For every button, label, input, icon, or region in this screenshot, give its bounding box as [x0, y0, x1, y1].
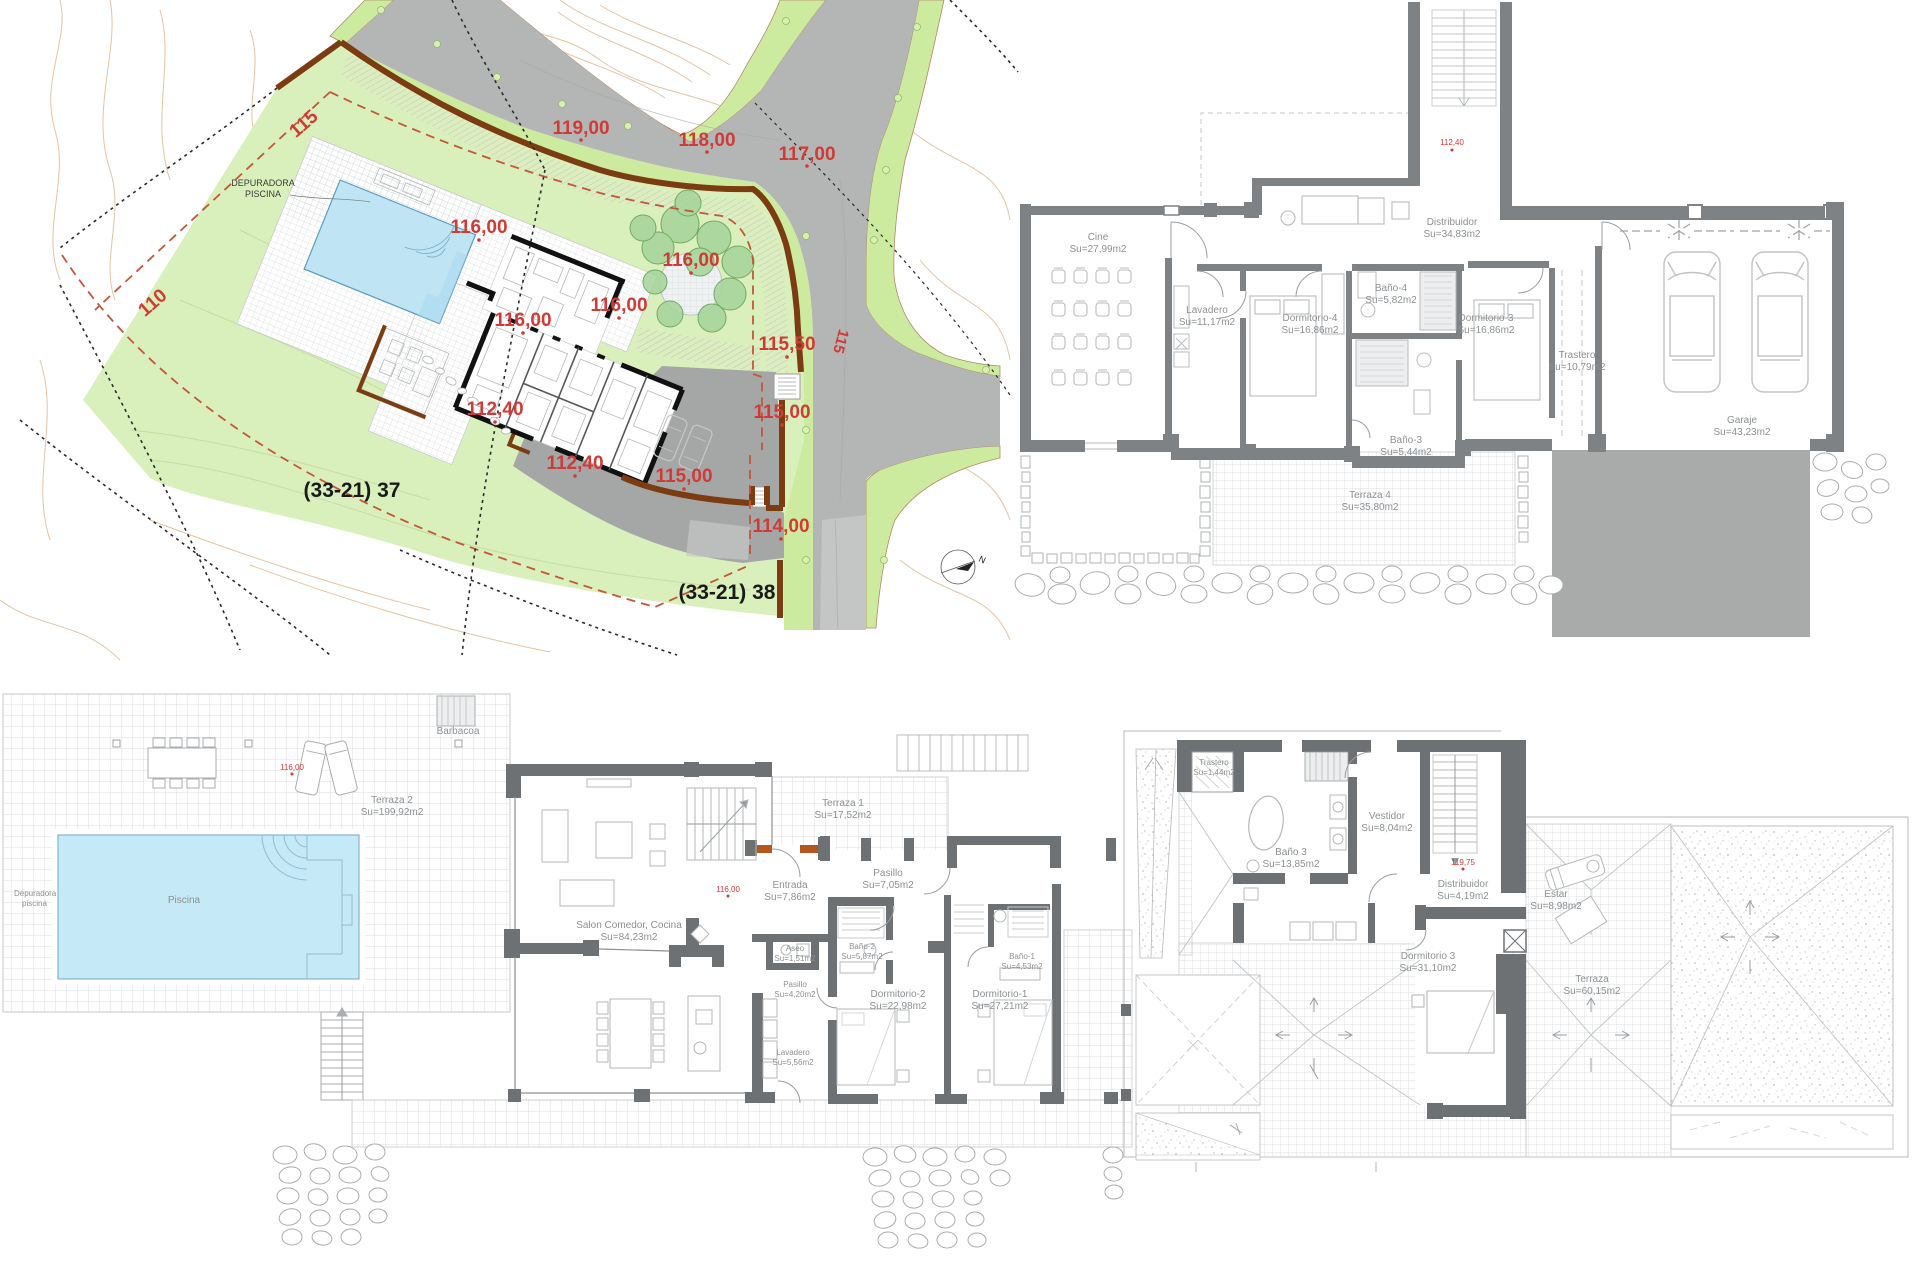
- svg-text:Terraza 4: Terraza 4: [1349, 490, 1391, 501]
- svg-text:Dormitorio-2: Dormitorio-2: [870, 989, 925, 1000]
- svg-text:Su=1,44m2: Su=1,44m2: [1193, 768, 1235, 777]
- svg-text:piscina: piscina: [22, 899, 47, 908]
- svg-text:Piscina: Piscina: [168, 895, 201, 906]
- svg-text:Baño 3: Baño 3: [1275, 847, 1307, 858]
- svg-text:Su=4,53m2: Su=4,53m2: [1001, 962, 1043, 971]
- svg-text:Su=7,05m2: Su=7,05m2: [862, 880, 914, 891]
- svg-text:Lavadero: Lavadero: [1186, 305, 1228, 316]
- svg-text:116,00: 116,00: [450, 217, 507, 238]
- svg-text:Depuradora: Depuradora: [14, 889, 57, 898]
- svg-text:Su=60,15m2: Su=60,15m2: [1564, 986, 1621, 997]
- svg-text:Su=10,79m2: Su=10,79m2: [1549, 362, 1606, 373]
- svg-text:115,00: 115,00: [655, 466, 712, 487]
- svg-text:Su=13,85m2: Su=13,85m2: [1263, 859, 1320, 870]
- svg-text:Distribuidor: Distribuidor: [1427, 217, 1478, 228]
- svg-text:116,00: 116,00: [662, 250, 719, 271]
- svg-text:Dormitorio-1: Dormitorio-1: [972, 989, 1027, 1000]
- svg-text:Aseo: Aseo: [786, 944, 805, 953]
- svg-text:Su=22,98m2: Su=22,98m2: [870, 1001, 927, 1012]
- svg-text:(33-21) 38: (33-21) 38: [679, 581, 776, 604]
- svg-text:Trastero: Trastero: [1199, 758, 1229, 767]
- svg-text:Su=8,04m2: Su=8,04m2: [1361, 823, 1413, 834]
- svg-text:115,00: 115,00: [753, 402, 810, 423]
- svg-text:Barbacoa: Barbacoa: [437, 726, 480, 737]
- svg-text:Su=35,80m2: Su=35,80m2: [1342, 502, 1399, 513]
- svg-text:116,00: 116,00: [280, 763, 304, 772]
- svg-text:Su=8,98m2: Su=8,98m2: [1530, 901, 1582, 912]
- svg-text:(33-21) 37: (33-21) 37: [304, 479, 401, 502]
- svg-text:114,00: 114,00: [752, 516, 809, 537]
- svg-text:Pasillo: Pasillo: [783, 980, 807, 989]
- svg-text:Baño-2: Baño-2: [849, 942, 875, 951]
- svg-text:Su=4,19m2: Su=4,19m2: [1437, 891, 1489, 902]
- svg-text:Su=199,92m2: Su=199,92m2: [361, 807, 424, 818]
- svg-text:117,00: 117,00: [778, 144, 835, 165]
- svg-text:Lavadero: Lavadero: [776, 1048, 810, 1057]
- svg-text:Dormitorio-4: Dormitorio-4: [1282, 313, 1337, 324]
- svg-text:Su=5,44m2: Su=5,44m2: [1380, 447, 1432, 458]
- svg-text:Su=27,99m2: Su=27,99m2: [1070, 244, 1127, 255]
- svg-text:Terraza 1: Terraza 1: [822, 798, 864, 809]
- svg-text:Su=1,51m2: Su=1,51m2: [774, 954, 816, 963]
- svg-text:PISCINA: PISCINA: [245, 189, 281, 199]
- svg-text:Vestidor: Vestidor: [1369, 811, 1406, 822]
- svg-text:Su=11,17m2: Su=11,17m2: [1179, 317, 1236, 328]
- svg-text:Entrada: Entrada: [772, 880, 807, 891]
- svg-text:119,00: 119,00: [552, 118, 609, 139]
- svg-text:Baño-3: Baño-3: [1390, 435, 1423, 446]
- svg-text:Su=27,21m2: Su=27,21m2: [972, 1001, 1029, 1012]
- svg-text:116,00: 116,00: [716, 885, 740, 894]
- svg-text:Su=16,86m2: Su=16,86m2: [1282, 325, 1339, 336]
- svg-text:Su=16,86m2: Su=16,86m2: [1458, 325, 1515, 336]
- svg-text:Cine: Cine: [1088, 232, 1109, 243]
- svg-text:DEPURADORA: DEPURADORA: [231, 178, 295, 188]
- svg-text:Su=17,52m2: Su=17,52m2: [815, 810, 872, 821]
- svg-text:112,40: 112,40: [466, 399, 523, 420]
- svg-text:Su=31,10m2: Su=31,10m2: [1400, 963, 1457, 974]
- svg-text:Salon Comedor, Cocina: Salon Comedor, Cocina: [576, 920, 682, 931]
- svg-text:Su=7,86m2: Su=7,86m2: [764, 892, 816, 903]
- svg-text:Su=43,23m2: Su=43,23m2: [1714, 427, 1771, 438]
- svg-text:Garaje: Garaje: [1727, 415, 1757, 426]
- svg-text:Pasillo: Pasillo: [873, 868, 903, 879]
- svg-text:Su=84,23m2: Su=84,23m2: [601, 932, 658, 943]
- svg-text:Baño-4: Baño-4: [1375, 283, 1408, 294]
- svg-text:Terraza 2: Terraza 2: [371, 795, 413, 806]
- svg-text:Dormitorio-3: Dormitorio-3: [1458, 313, 1513, 324]
- svg-text:Su=34,83m2: Su=34,83m2: [1424, 229, 1481, 240]
- svg-text:116,00: 116,00: [590, 295, 647, 316]
- svg-text:Terraza: Terraza: [1575, 974, 1609, 985]
- svg-text:118,00: 118,00: [678, 130, 735, 151]
- svg-text:112,40: 112,40: [546, 453, 603, 474]
- svg-text:115,50: 115,50: [758, 334, 815, 355]
- svg-text:112,40: 112,40: [1440, 138, 1464, 147]
- svg-text:Distribuidor: Distribuidor: [1438, 879, 1489, 890]
- svg-text:Su=5,82m2: Su=5,82m2: [1365, 295, 1417, 306]
- svg-text:Dormitorio 3: Dormitorio 3: [1401, 951, 1456, 962]
- svg-text:Su=5,87m2: Su=5,87m2: [841, 952, 883, 961]
- svg-text:Estar: Estar: [1544, 889, 1568, 900]
- svg-text:119,75: 119,75: [1451, 858, 1475, 867]
- svg-text:Su=4,20m2: Su=4,20m2: [774, 990, 816, 999]
- svg-text:Trastero: Trastero: [1559, 350, 1596, 361]
- svg-text:Su=5,56m2: Su=5,56m2: [772, 1058, 814, 1067]
- svg-text:Baño-1: Baño-1: [1009, 952, 1035, 961]
- svg-text:116,00: 116,00: [494, 310, 551, 331]
